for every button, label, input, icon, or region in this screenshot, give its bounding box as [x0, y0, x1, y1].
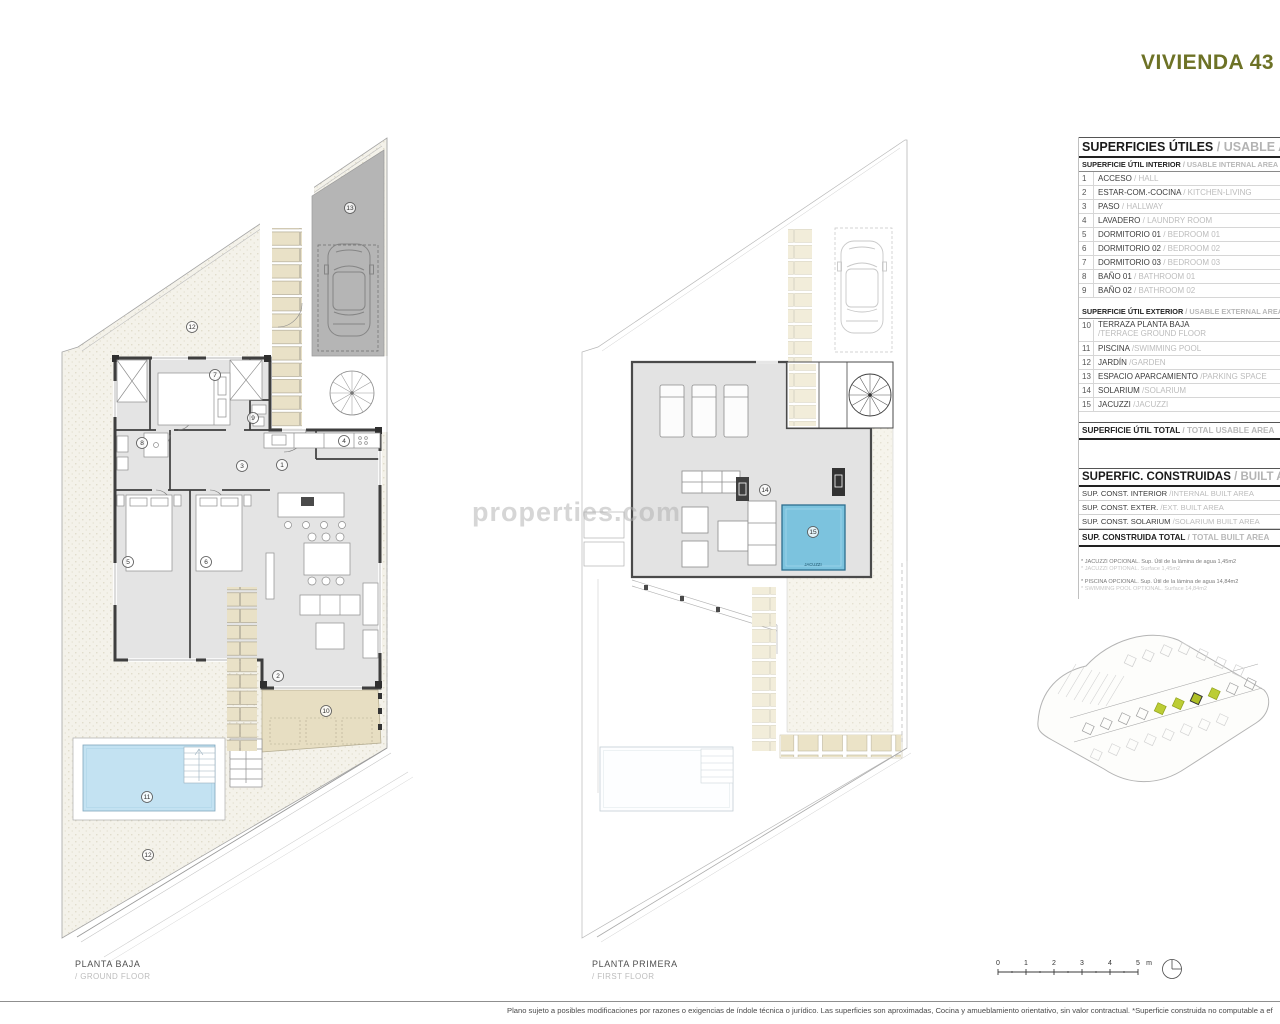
legend-exterior-header: SUPERFICIE ÚTIL EXTERIOR / USABLE EXTERN… — [1079, 305, 1280, 319]
svg-text:3: 3 — [1080, 960, 1084, 967]
legend-row: SUP. CONST. EXTER. /EXT. BUILT AREA — [1079, 501, 1280, 515]
stair-compartments — [787, 362, 893, 428]
scale-bar: 0 1 2 3 4 5 m — [985, 955, 1195, 983]
footer-divider — [0, 1001, 1280, 1002]
room-marker: 14 — [760, 485, 771, 496]
legend-row: 1ACCESO / HALL — [1079, 172, 1280, 186]
legend-interior-header: SUPERFICIE ÚTIL INTERIOR / USABLE INTERN… — [1079, 158, 1280, 172]
site-key-plan — [1030, 620, 1280, 800]
legend-row: 15JACUZZI /JACUZZI — [1079, 398, 1280, 412]
svg-text:13: 13 — [346, 205, 354, 212]
jacuzzi-label: JACUZZI — [804, 562, 821, 567]
legend-panel: SUPERFICIES ÚTILES / USABLE AREA SUPERFI… — [1078, 137, 1280, 599]
svg-text:12: 12 — [188, 324, 196, 331]
svg-text:0: 0 — [996, 960, 1000, 967]
legend-notes: * JACUZZI OPCIONAL. Sup. Útil de la lámi… — [1079, 559, 1280, 593]
room-marker: 9 — [248, 413, 259, 424]
svg-text:8: 8 — [140, 440, 144, 447]
svg-text:7: 7 — [213, 372, 217, 379]
stepping-stones-ghost — [752, 587, 776, 751]
legend-row: 10TERRAZA PLANTA BAJA/TERRACE GROUND FLO… — [1079, 319, 1280, 342]
room-marker: 12 — [143, 850, 154, 861]
svg-text:12: 12 — [144, 852, 152, 859]
legend-row: 11PISCINA /SWIMMING POOL — [1079, 342, 1280, 356]
legend-built-total: SUP. CONSTRUIDA TOTAL / TOTAL BUILT AREA — [1079, 529, 1280, 547]
svg-text:4: 4 — [342, 438, 346, 445]
legend-built-title: SUPERFIC. CONSTRUIDAS / BUILT AREA — [1079, 468, 1280, 487]
room-marker: 6 — [201, 557, 212, 568]
svg-text:3: 3 — [240, 463, 244, 470]
legend-row: 9BAÑO 02 / BATHROOM 02 — [1079, 284, 1280, 298]
svg-text:5: 5 — [126, 559, 130, 566]
north-icon — [1163, 960, 1182, 979]
legend-row: 6DORMITORIO 02 / BEDROOM 02 — [1079, 242, 1280, 256]
room-marker: 4 — [339, 436, 350, 447]
legend-usable-total: SUPERFICIE ÚTIL TOTAL / TOTAL USABLE ARE… — [1079, 422, 1280, 440]
pool-outline-ghost — [600, 747, 733, 811]
legend-row: 3PASO / HALLWAY — [1079, 200, 1280, 214]
page-title: VIVIENDA 43 TI — [1141, 51, 1280, 75]
svg-text:9: 9 — [251, 415, 255, 422]
room-marker: 11 — [142, 792, 153, 803]
svg-text:15: 15 — [809, 529, 817, 536]
legend-row: 8BAÑO 01 / BATHROOM 01 — [1079, 270, 1280, 284]
watermark: properties.com — [472, 497, 681, 528]
room-marker: 10 — [321, 706, 332, 717]
room-marker: 8 — [137, 438, 148, 449]
svg-text:10: 10 — [322, 708, 330, 715]
legend-row: SUP. CONST. INTERIOR /INTERNAL BUILT ARE… — [1079, 487, 1280, 501]
svg-text:5: 5 — [1136, 960, 1140, 967]
svg-text:6: 6 — [204, 559, 208, 566]
legend-row: 13ESPACIO APARCAMIENTO /PARKING SPACE — [1079, 370, 1280, 384]
footer-disclaimer: Plano sujeto a posibles modificaciones p… — [507, 1006, 1273, 1015]
room-marker: 2 — [273, 671, 284, 682]
svg-text:4: 4 — [1108, 960, 1112, 967]
room-marker: 1 — [277, 460, 288, 471]
ground-floor-label: PLANTA BAJA / GROUND FLOOR — [75, 959, 150, 981]
svg-text:m: m — [1146, 960, 1152, 967]
svg-text:1: 1 — [1024, 960, 1028, 967]
ground-floor-plan: 13 12 7 9 8 3 1 4 5 6 2 10 11 12 — [60, 133, 452, 963]
svg-text:2: 2 — [276, 673, 280, 680]
stepping-stones — [227, 587, 257, 751]
terrace — [262, 690, 382, 752]
first-floor-label: PLANTA PRIMERA / FIRST FLOOR — [592, 959, 678, 981]
sun-loungers — [660, 385, 748, 437]
svg-text:14: 14 — [761, 487, 769, 494]
legend-usable-title: SUPERFICIES ÚTILES / USABLE AREA — [1079, 137, 1280, 158]
pool-ladder — [184, 747, 215, 783]
room-marker: 3 — [237, 461, 248, 472]
svg-text:2: 2 — [1052, 960, 1056, 967]
room-marker: 7 — [210, 370, 221, 381]
spiral-staircase-icon — [849, 374, 891, 416]
first-floor-plan: JACUZZI 14 15 — [578, 133, 970, 963]
legend-row: 4LAVADERO / LAUNDRY ROOM — [1079, 214, 1280, 228]
svg-text:1: 1 — [280, 462, 284, 469]
legend-row: 12JARDÍN /GARDEN — [1079, 356, 1280, 370]
legend-row: 2ESTAR-COM.-COCINA / KITCHEN-LIVING — [1079, 186, 1280, 200]
legend-row: 14SOLARIUM /SOLARIUM — [1079, 384, 1280, 398]
spiral-staircase-icon — [330, 371, 374, 415]
room-marker: 13 — [345, 203, 356, 214]
legend-row: 7DORMITORIO 03 / BEDROOM 03 — [1079, 256, 1280, 270]
room-marker: 5 — [123, 557, 134, 568]
bottom-tile-row — [780, 735, 902, 758]
room-marker: 15 — [808, 527, 819, 538]
room-marker: 12 — [187, 322, 198, 333]
parking-area — [312, 150, 384, 356]
svg-text:11: 11 — [144, 794, 151, 801]
legend-row: SUP. CONST. SOLARIUM /SOLARIUM BUILT ARE… — [1079, 515, 1280, 529]
legend-row: 5DORMITORIO 01 / BEDROOM 01 — [1079, 228, 1280, 242]
